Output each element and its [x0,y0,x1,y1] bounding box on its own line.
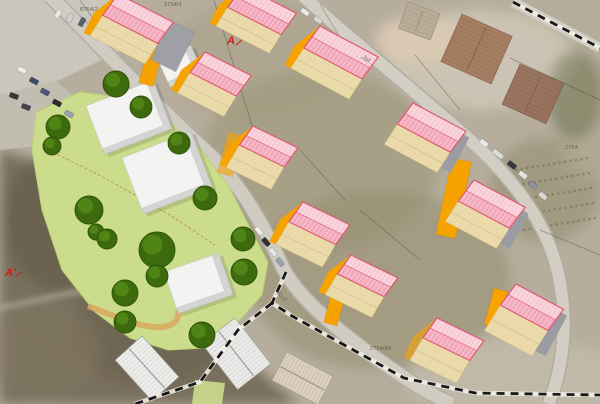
section-marker: A [226,35,235,47]
tree [231,259,257,285]
tree [189,322,215,348]
parcel-number: 2754/1 [164,2,182,8]
tree [168,132,190,154]
tree [43,137,61,155]
parcel-number: 2754 [565,145,578,151]
tree [97,229,117,249]
tree [193,186,217,210]
tree [112,280,138,306]
tree [231,227,255,251]
tree [139,232,175,268]
tree [114,311,136,333]
tree [146,265,168,287]
aerial-site-plan: 8754/22754/127542754/64Roz...Jat...AA' [0,0,600,404]
tree [75,196,103,224]
tree [130,96,152,118]
tree [103,71,129,97]
site-plan-canvas: 8754/22754/127542754/64Roz...Jat...AA' [0,0,600,404]
section-marker: A' [4,267,16,279]
parcel-number: 2754/64 [370,346,391,352]
tree [46,115,70,139]
parcel-number: 8754/2 [80,7,98,13]
